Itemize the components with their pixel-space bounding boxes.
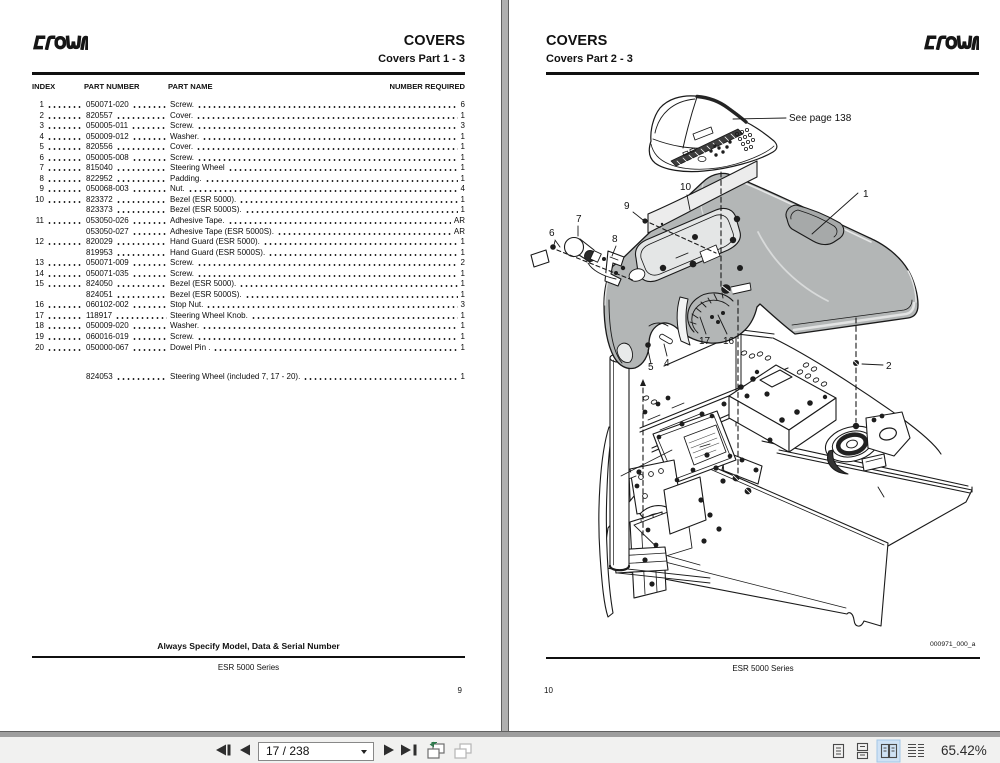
svg-text:17: 17 xyxy=(699,336,711,347)
svg-text:8: 8 xyxy=(612,234,618,245)
svg-text:See page 138: See page 138 xyxy=(789,113,852,124)
svg-text:2: 2 xyxy=(886,361,892,372)
svg-text:4: 4 xyxy=(664,358,670,369)
svg-text:9: 9 xyxy=(624,201,630,212)
svg-text:1: 1 xyxy=(863,189,869,200)
svg-text:5: 5 xyxy=(648,362,654,373)
svg-text:16: 16 xyxy=(723,336,735,347)
svg-text:7: 7 xyxy=(576,214,582,225)
svg-text:6: 6 xyxy=(549,228,555,239)
svg-text:10: 10 xyxy=(680,182,692,193)
